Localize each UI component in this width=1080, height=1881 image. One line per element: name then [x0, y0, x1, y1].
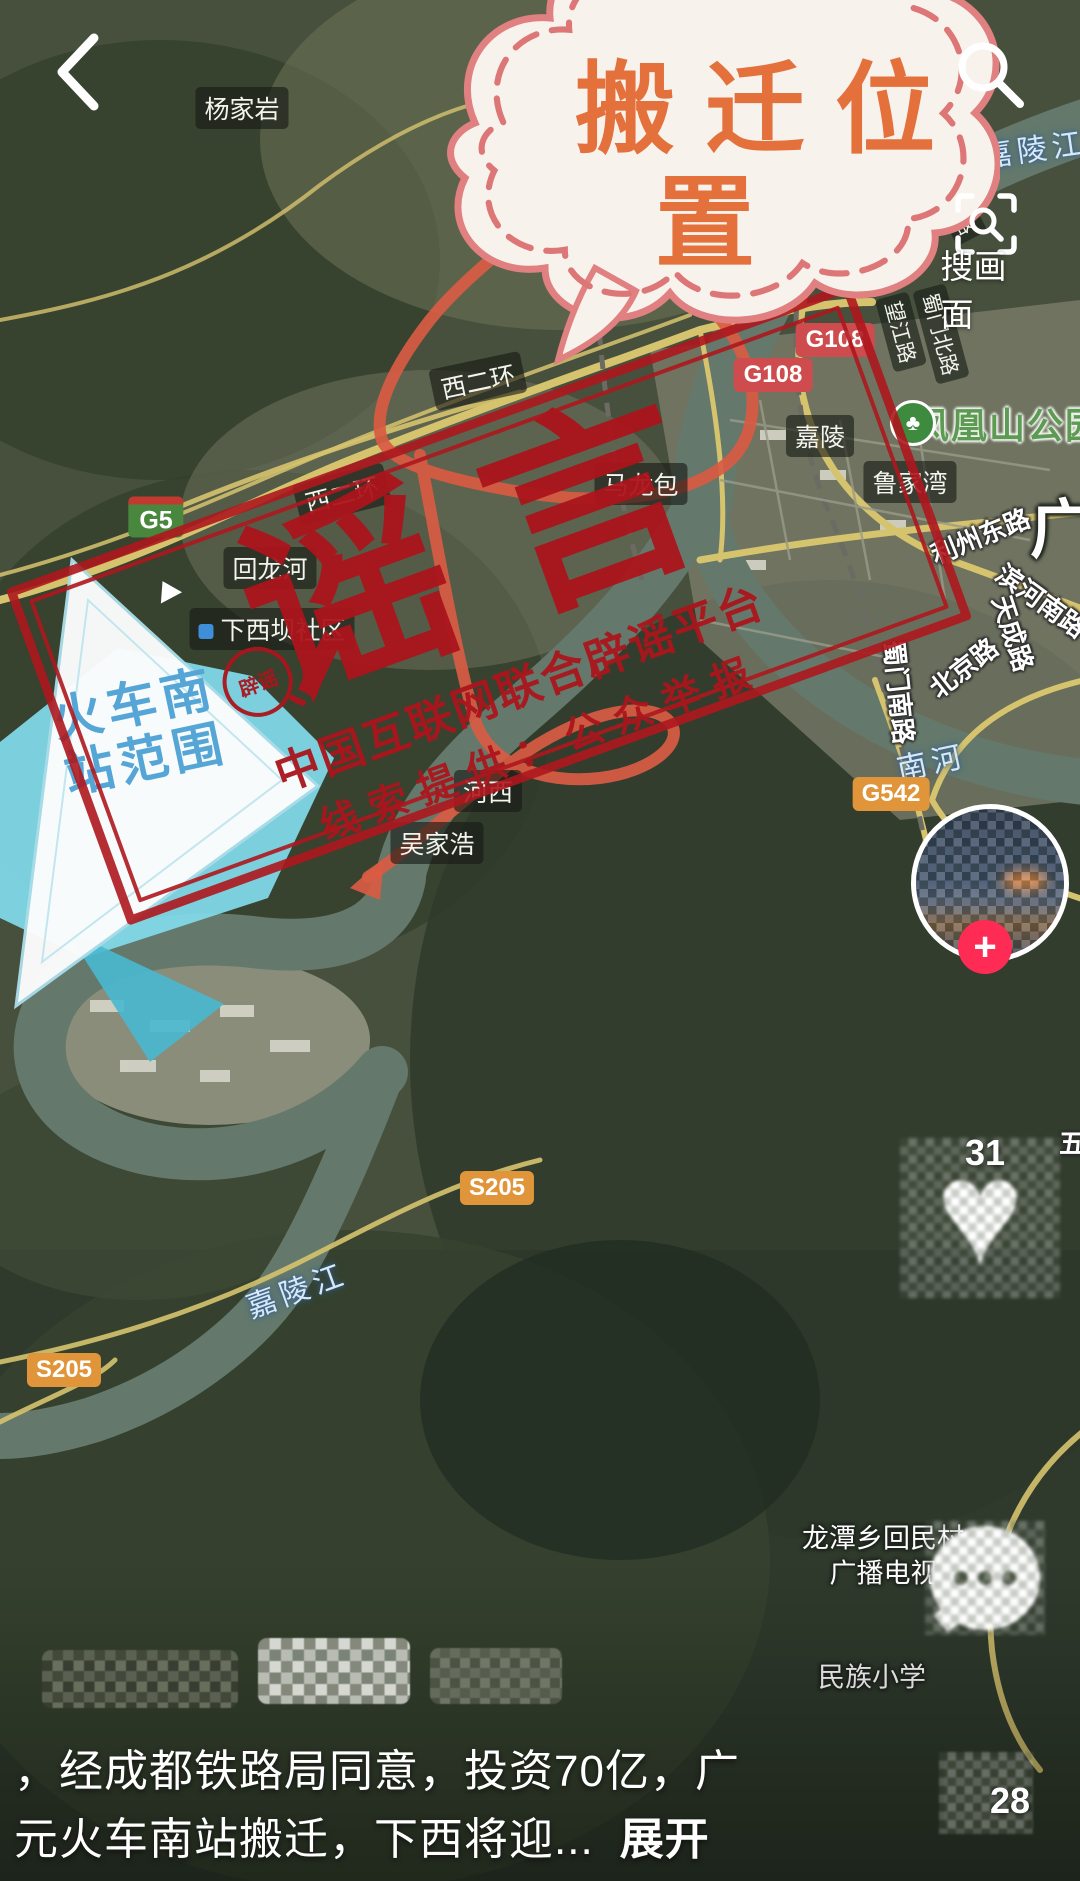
caption-line1: ，经成都铁路局同意，投资70亿，广 — [14, 1735, 740, 1799]
like-count: 31 — [965, 1132, 1005, 1174]
share-count: 28 — [990, 1780, 1030, 1822]
search-button[interactable] — [952, 36, 1028, 112]
username-badge-blurred — [258, 1638, 410, 1704]
back-chevron-icon — [62, 38, 94, 106]
username-blurred[interactable] — [42, 1650, 238, 1708]
avatar-blurred-photo — [1002, 871, 1048, 891]
bubble-text-line1: 搬迁位 — [575, 28, 965, 173]
comment-bubble-icon[interactable] — [930, 1526, 1040, 1630]
bubble-text-line2: 置 — [655, 142, 755, 287]
username-extra-blurred — [430, 1648, 562, 1704]
caption-line2-text: 元火车南站搬迁，下西将迎... — [14, 1815, 594, 1864]
douyin-video-screen: 杨家岩嘉陵江则天北路G108G108凤凰山公园望江路蜀门北路嘉陵鲁家湾马龙包西二… — [0, 0, 1080, 1881]
scan-search-label[interactable]: 搜画面 — [941, 240, 1034, 336]
caption-line2: 元火车南站搬迁，下西将迎...展开 — [14, 1803, 710, 1867]
follow-button[interactable]: + — [958, 920, 1012, 974]
caption-expand-button[interactable]: 展开 — [620, 1815, 710, 1864]
back-button[interactable] — [50, 30, 110, 114]
